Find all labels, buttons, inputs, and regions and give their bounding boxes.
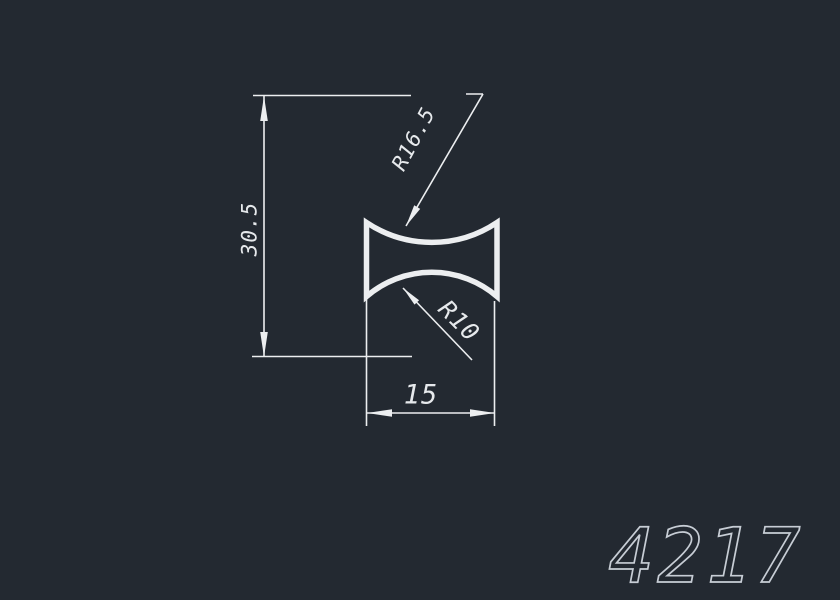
dim-height-label: 30.5 (240, 202, 261, 257)
dim-width-arrow-left (367, 409, 392, 416)
dim-width-arrow-right (470, 409, 495, 416)
dim-height-arrow-down (260, 332, 268, 357)
cad-viewport[interactable]: 30.5 R16.5 R10 15 4217 (0, 0, 840, 600)
part-number: 4217 (608, 518, 803, 594)
profile-drawing (0, 0, 840, 600)
profile-outline (367, 223, 498, 297)
leader-outer-radius-arrow (406, 205, 420, 226)
dim-height-arrow-up (260, 96, 268, 121)
leader-inner-radius-arrow (403, 288, 419, 305)
dim-height (252, 96, 412, 358)
dim-width-label: 15 (404, 382, 439, 409)
